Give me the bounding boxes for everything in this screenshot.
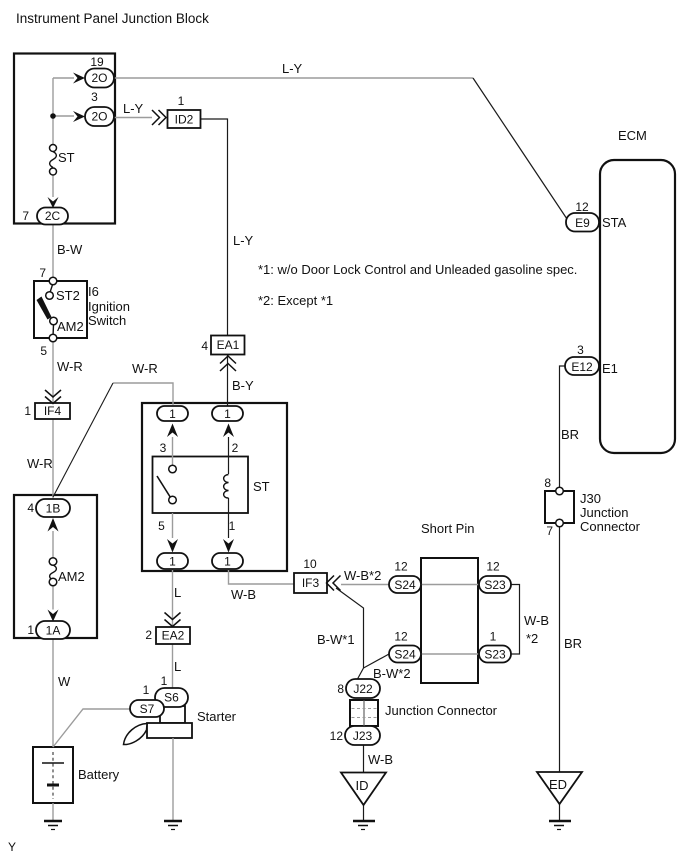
connector-name-if3: IF3: [302, 576, 320, 590]
wiring-diagram-canvas: Instrument Panel Junction Block *1: w/o …: [0, 0, 690, 855]
relay-oval-name-bottom-left: 1: [169, 555, 176, 569]
pin-s23-bottom: 1: [490, 630, 497, 644]
junction-connector-label: Junction Connector: [385, 703, 498, 718]
ground-icon-battery: [44, 821, 62, 830]
pin-id2: 1: [178, 94, 185, 108]
starter-relay-inner-box: [153, 457, 249, 514]
terminal-st2-label: ST2: [56, 288, 80, 303]
ignition-ref-label: I6: [88, 284, 99, 299]
wire-label-br-lower: BR: [564, 636, 582, 651]
wire-ly-diagonal-to-e9: [473, 78, 567, 219]
pin-s24-top: 12: [394, 560, 408, 574]
connector-name-id2: ID2: [175, 113, 194, 127]
page-title: Instrument Panel Junction Block: [16, 11, 209, 26]
relay-switch-terminal-bottom: [169, 496, 177, 504]
ignition-terminal-7: [49, 277, 57, 285]
starter-drive-hook-icon: [124, 724, 148, 745]
pin-j30-bottom: 7: [546, 524, 553, 538]
wire-label-l-starter: L: [174, 659, 181, 674]
pin-relay-2: 2: [232, 441, 239, 455]
terminal-am2-label: AM2: [57, 319, 84, 334]
pin-if3: 10: [303, 557, 317, 571]
wire-label-ly-top: L-Y: [282, 61, 303, 76]
ground-icon-id: [353, 821, 375, 830]
pin-relay-3: 3: [160, 441, 167, 455]
relay-oval-name-top-left: 1: [169, 407, 176, 421]
wiring-diagram-page: Instrument Panel Junction Block *1: w/o …: [0, 0, 690, 855]
connector-name-if4: IF4: [44, 404, 62, 418]
j30-label-line1: J30: [580, 491, 601, 506]
j30-label-line3: Connector: [580, 519, 641, 534]
e1-signal-label: E1: [602, 361, 618, 376]
chevron-into-id2-icon: [152, 110, 166, 125]
pin-e9: 12: [575, 200, 589, 214]
am2-fuse-terminal-bottom: [49, 578, 57, 586]
ground-ed-label: ED: [549, 777, 567, 792]
note-2: *2: Except *1: [258, 293, 333, 308]
pin-ea2: 2: [145, 628, 152, 642]
pin-1b: 4: [27, 501, 34, 515]
short-pin-box: [421, 558, 478, 683]
chevron-into-if3-icon: [327, 576, 341, 591]
sta-signal-label: STA: [602, 215, 627, 230]
ignition-label-line1: Ignition: [88, 299, 130, 314]
am2-fuse-terminal-top: [49, 558, 57, 566]
connector-name-2c: 2C: [45, 209, 61, 223]
pin-2c: 7: [22, 209, 29, 223]
wire-label-w: W: [58, 674, 71, 689]
j30-terminal-bottom: [556, 519, 564, 527]
fuse-st-label: ST: [58, 150, 75, 165]
st-fuse-terminal-bottom: [50, 168, 57, 175]
fuse-am2-label: AM2: [58, 569, 85, 584]
starter-label: Starter: [197, 709, 237, 724]
j30-connector-box: [545, 491, 574, 523]
pin-s7: 1: [143, 683, 150, 697]
wire-label-wb-right-line1: W-B: [524, 613, 549, 628]
wire-label-wb-right-line2: *2: [526, 631, 538, 646]
wire-ly-id2-to-ea1: [201, 119, 228, 336]
connector-name-j22: J22: [353, 682, 373, 696]
wire-label-bw2: B-W*2: [373, 666, 411, 681]
wire-label-ly-to-id2: L-Y: [123, 101, 144, 116]
pin-ignition-top: 7: [39, 266, 46, 280]
wire-wr-branch: [113, 383, 173, 405]
wire-s7-to-battery: [53, 709, 130, 747]
connector-name-1a: 1A: [46, 624, 61, 638]
ignition-terminal-st2: [46, 292, 54, 300]
ignition-terminal-5: [49, 334, 57, 342]
pin-e12: 3: [577, 343, 584, 357]
pin-s23-top: 12: [486, 560, 500, 574]
ecm-body: [600, 160, 675, 453]
connector-name-s6: S6: [164, 691, 179, 705]
ecm-label: ECM: [618, 128, 647, 143]
relay-oval-name-bottom-right: 1: [224, 555, 231, 569]
pin-j30-top: 8: [544, 476, 551, 490]
ground-icon-ed: [549, 821, 571, 830]
ignition-label-line2: Switch: [88, 313, 126, 328]
wire-label-ly-mid: L-Y: [233, 233, 254, 248]
connector-name-s23-top: S23: [484, 578, 506, 592]
pin-ea1: 4: [201, 339, 208, 353]
wire-label-by: B-Y: [232, 378, 254, 393]
wire-wr-diagonal-branch: [53, 383, 113, 497]
short-pin-label: Short Pin: [421, 521, 474, 536]
wire-label-bw1: B-W*1: [317, 632, 355, 647]
starter-motor-box: [147, 723, 192, 738]
pin-1a: 1: [27, 623, 34, 637]
j30-label-line2: Junction: [580, 505, 628, 520]
pin-2o-3: 3: [91, 90, 98, 104]
wire-label-wb-relay: W-B: [231, 587, 256, 602]
wire-junction-dot: [50, 113, 56, 119]
page-marker: Y: [8, 840, 16, 854]
connector-name-j23: J23: [353, 729, 373, 743]
wire-label-br-upper: BR: [561, 427, 579, 442]
pin-j22: 8: [337, 682, 344, 696]
pin-if4: 1: [24, 404, 31, 418]
pin-ignition-bottom: 5: [40, 344, 47, 358]
st-fuse-terminal-top: [50, 145, 57, 152]
connector-name-ea1: EA1: [217, 338, 240, 352]
relay-st-label: ST: [253, 479, 270, 494]
connector-name-ea2: EA2: [162, 629, 185, 643]
wire-label-wb-ground: W-B: [368, 752, 393, 767]
connector-name-2o-19: 2O: [91, 71, 107, 85]
wire-label-wr-below-switch: W-R: [57, 359, 83, 374]
connector-name-e12: E12: [571, 360, 593, 374]
relay-switch-terminal-top: [169, 465, 177, 473]
pin-relay-1: 1: [229, 519, 236, 533]
ground-icon-starter: [164, 821, 182, 830]
connector-name-e9: E9: [575, 216, 590, 230]
j30-terminal-top: [556, 487, 564, 495]
relay-oval-name-top-right: 1: [224, 407, 231, 421]
pin-s6: 1: [161, 674, 168, 688]
wire-label-wr-below-if4: W-R: [27, 456, 53, 471]
wire-s23-bracket: [511, 585, 520, 655]
ground-id-label: ID: [356, 778, 369, 793]
connector-name-2o-3: 2O: [91, 110, 107, 124]
wire-label-bw: B-W: [57, 242, 83, 257]
connector-name-s24-top: S24: [394, 578, 416, 592]
connector-name-1b: 1B: [46, 502, 61, 516]
connector-name-s24-bottom: S24: [394, 648, 416, 662]
battery-label: Battery: [78, 767, 120, 782]
pin-relay-5: 5: [158, 519, 165, 533]
connector-name-s7: S7: [140, 702, 155, 716]
pin-2o-19: 19: [90, 55, 104, 69]
pin-j23: 12: [330, 729, 344, 743]
wire-label-wr-branch: W-R: [132, 361, 158, 376]
wire-label-l-relay: L: [174, 585, 181, 600]
pin-s24-bottom: 12: [394, 630, 408, 644]
connector-name-s23-bottom: S23: [484, 648, 506, 662]
wire-label-wb2-if3: W-B*2: [344, 568, 381, 583]
note-1: *1: w/o Door Lock Control and Unleaded g…: [258, 262, 577, 277]
